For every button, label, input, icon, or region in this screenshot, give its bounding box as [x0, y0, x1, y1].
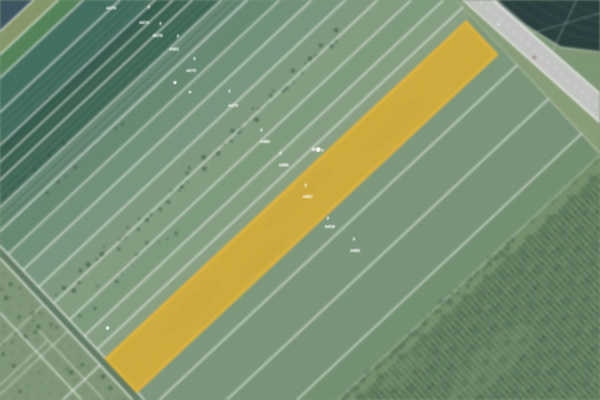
svg-text:4465: 4465	[350, 248, 361, 254]
svg-text:4474: 4474	[139, 20, 150, 26]
svg-text:4482: 4482	[169, 47, 180, 53]
svg-text:4485: 4485	[278, 163, 289, 169]
svg-text:4470: 4470	[186, 68, 197, 74]
svg-text:4478: 4478	[152, 33, 163, 39]
svg-text:4480: 4480	[260, 139, 271, 145]
svg-text:4487: 4487	[303, 194, 314, 200]
svg-text:4470: 4470	[228, 103, 239, 109]
svg-text:4408: 4408	[325, 224, 336, 230]
svg-text:4475: 4475	[106, 6, 117, 12]
